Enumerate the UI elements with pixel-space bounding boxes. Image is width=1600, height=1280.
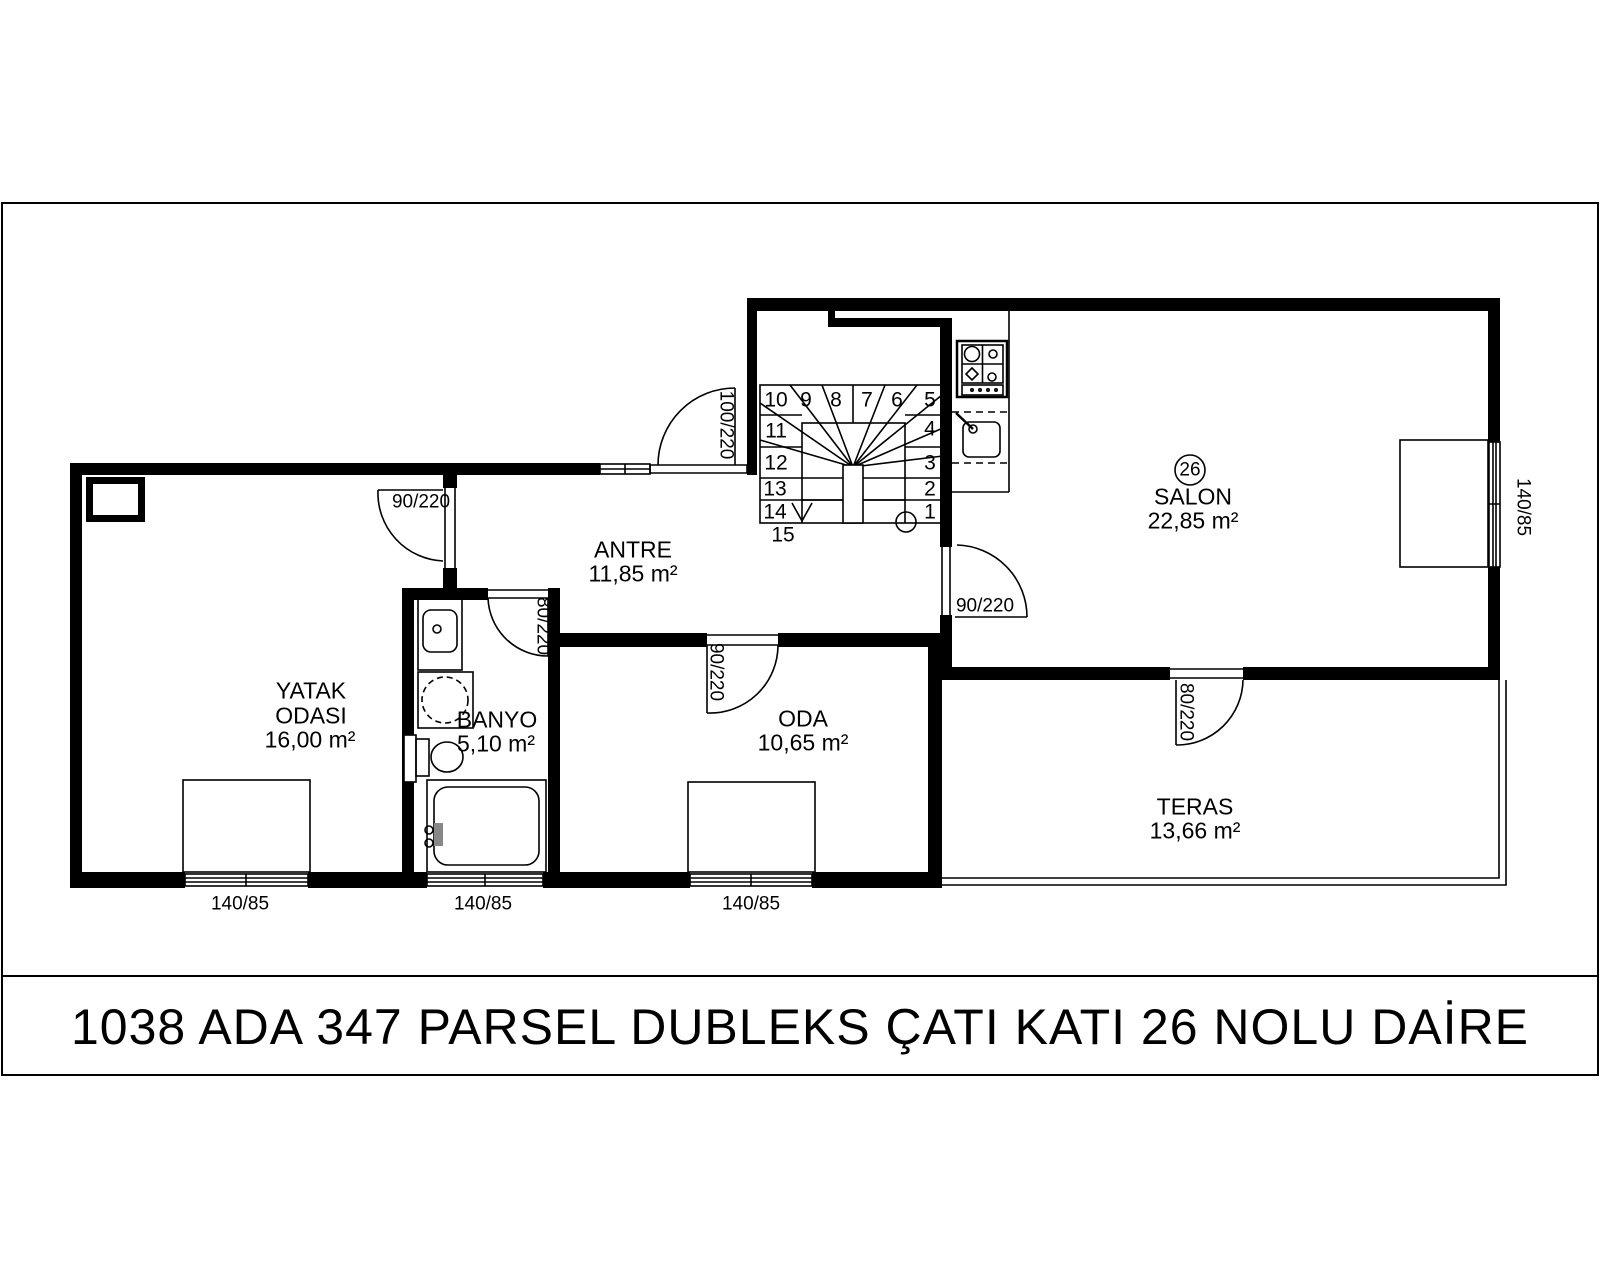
bathtub-tap [434, 823, 443, 846]
room-label-yatak-line2: ODASI [275, 705, 347, 728]
door-size-entrance: 100/220 [717, 391, 736, 460]
window-size-oda: 140/85 [722, 895, 780, 914]
door-size-teras: 80/220 [1177, 683, 1196, 741]
window-size-yatak: 140/85 [211, 895, 269, 914]
floor-plan-drawing [0, 0, 1600, 1280]
room-area-antre: 11,85 m² [588, 563, 677, 586]
teras-threshold [1170, 669, 1243, 678]
room-area-salon: 22,85 m² [1148, 510, 1239, 533]
room-area-teras: 13,66 m² [1150, 820, 1241, 843]
bathtub [425, 780, 546, 872]
stair-step-2: 2 [924, 479, 936, 500]
toilet [404, 735, 463, 782]
plan-border [2, 203, 1598, 976]
room-area-banyo: 5,10 m² [457, 733, 535, 756]
stove [957, 341, 1007, 397]
stair-step-1: 1 [924, 502, 936, 523]
room-label-banyo: BANYO [457, 709, 538, 732]
stair-step-8: 8 [830, 390, 842, 411]
stair-step-3: 3 [924, 453, 936, 474]
room-label-oda: ODA [778, 708, 828, 731]
room-label-salon: SALON [1154, 486, 1232, 509]
handrail-post [896, 512, 916, 532]
stair-step-13: 13 [763, 479, 786, 500]
stair-step-4: 4 [924, 419, 936, 440]
washbasin [418, 598, 462, 670]
window-size-salon: 140/85 [1514, 478, 1533, 536]
door-size-banyo: 80/220 [534, 597, 553, 655]
sheet-title: 1038 ADA 347 PARSEL DUBLEKS ÇATI KATI 26… [71, 998, 1529, 1056]
room-label-antre: ANTRE [594, 539, 672, 562]
stair-step-12: 12 [764, 453, 787, 474]
room-area-yatak: 16,00 m² [265, 729, 356, 752]
thin-lines [183, 311, 1506, 886]
door-size-salon: 90/220 [956, 597, 1014, 616]
yatak-bed [183, 780, 310, 872]
stair-step-7: 7 [861, 390, 873, 411]
stair-step-14: 14 [763, 502, 786, 523]
banyo-window [427, 874, 543, 886]
stair-step-6: 6 [891, 390, 903, 411]
stair-step-5: 5 [924, 390, 936, 411]
stair-step-10: 10 [764, 390, 787, 411]
stair-step-15: 15 [771, 525, 794, 546]
stair-step-11: 11 [765, 421, 787, 442]
unit-badge: 26 [1179, 461, 1200, 480]
salon-window [1489, 442, 1500, 567]
door-size-yatak: 90/220 [392, 493, 450, 512]
salon-furniture [1400, 440, 1488, 567]
room-label-yatak-line1: YATAK [276, 680, 346, 703]
oda-window [690, 874, 812, 886]
salon-threshold [942, 547, 950, 615]
floor-plan-page: YATAK ODASI 16,00 m² BANYO 5,10 m² ANTRE… [0, 0, 1600, 1280]
room-area-oda: 10,65 m² [758, 732, 849, 755]
kitchen-counter [952, 311, 1009, 492]
window-size-banyo: 140/85 [454, 895, 512, 914]
room-label-teras: TERAS [1157, 796, 1234, 819]
oda-bed [688, 782, 815, 872]
walls [70, 298, 1500, 888]
stair-step-9: 9 [800, 390, 812, 411]
kitchen-sink [956, 413, 1000, 457]
yatak-window [185, 874, 308, 886]
antre-window [600, 464, 650, 474]
entrance-threshold [650, 465, 747, 473]
door-size-oda: 90/220 [707, 643, 726, 701]
